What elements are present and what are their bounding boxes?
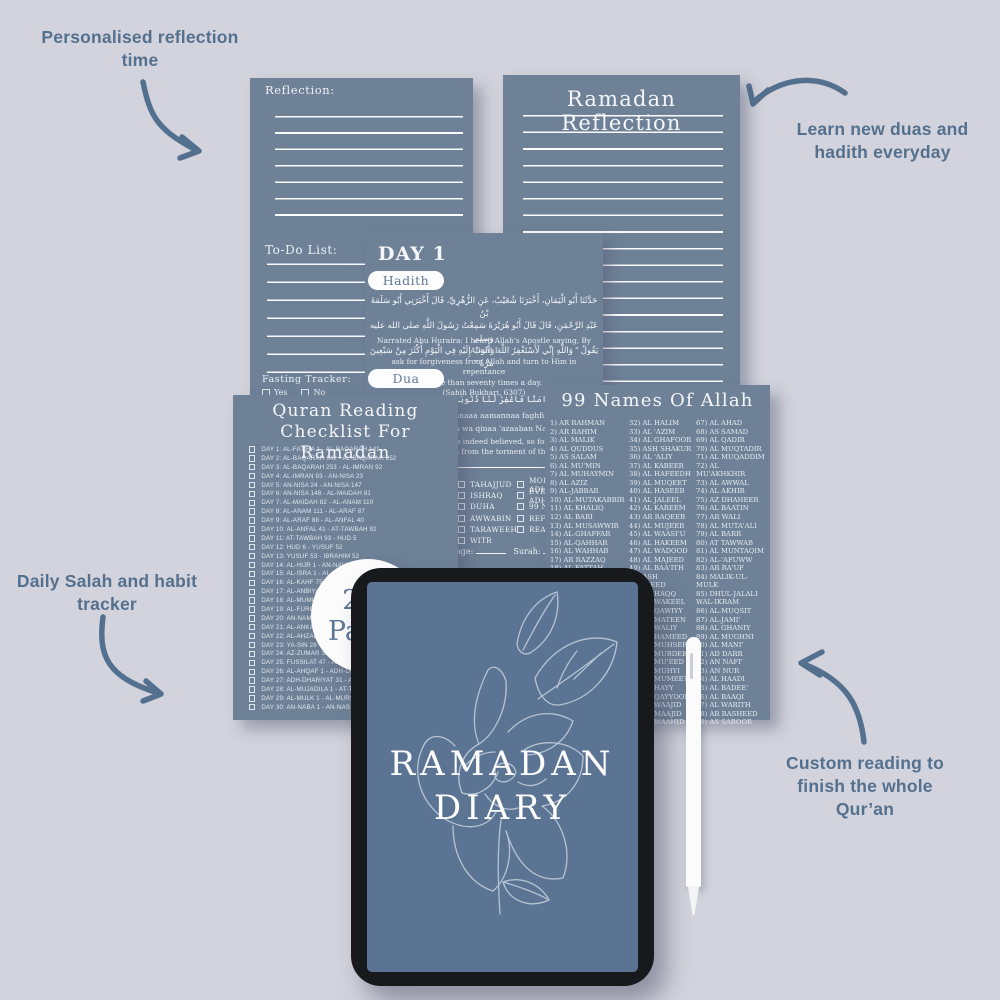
checkbox-icon [249,473,255,479]
checklist-item-text: DAY 5: AN-NISA 24 - AN-NISA 147 [261,482,361,489]
allah-name: 81) AL MUNTAQIM [696,547,768,556]
allah-name: 77) AR WALI [696,513,768,522]
allah-name: 1) AR RAHMAN [550,419,628,428]
checklist-item: DAY 13: YUSUF 53 - IBRAHIM 52 [249,552,454,561]
allah-name: 76) AL BAATIN [696,504,768,513]
checkbox-icon [249,455,255,461]
allah-name: 16) AL WAHHAB [550,547,628,556]
checklist-item: DAY 10: AL-ANFAL 41 - AT-TAWBAH 92 [249,525,454,534]
allah-name: 72) AL MU'AKHKHIR [696,462,768,479]
allah-name: 17) AR RAZZAQ [550,556,628,565]
checklist-item-text: DAY 3: AL-BAQARAH 253 - AL-IMRAN 92 [261,464,382,471]
checklist-item: DAY 4: AL-IMRAN 93 - AN-NISA 23 [249,472,454,481]
allah-name: 2) AR RAHIM [550,428,628,437]
arrow-down-left-icon [749,86,768,104]
allah-name: 68) AS SAMAD [696,428,768,437]
surah-label: Surah: [514,547,541,556]
allah-name: 91) AD DARR [696,650,768,659]
prayer-checklist-item: WITR [458,535,517,546]
allah-name: 7) AL MUHAYMIN [550,470,628,479]
allah-name: 69) AL QADIR [696,436,768,445]
allah-name: 67) AL AHAD [696,419,768,428]
allah-name: 98) AR RASHEED [696,710,768,719]
allah-name: 95) AL BADEE' [696,684,768,693]
checkbox-icon [249,633,255,639]
stylus-tip [686,886,701,915]
allah-name: 11) AL KHALIQ [550,504,628,513]
allah-name: 44) AL MUJEEB [629,522,695,531]
checkbox-icon [249,446,255,452]
tablet-mockup: RAMADAN DIARY [351,568,654,986]
checkbox-icon [249,535,255,541]
checkbox-icon [249,686,255,692]
allah-name: 96) AL BAAQI [696,693,768,702]
checkbox-icon [249,491,255,497]
day1-title: DAY 1 [378,243,447,265]
allah-name: 13) AL MUSAWWIR [550,522,628,531]
checklist-item: DAY 2: AL-BAQARAH 142 - AL-BAQARAH 252 [249,454,454,463]
prayer-checklist-item: TAHAJJUD [458,479,517,490]
names-column-3: 67) AL AHAD68) AS SAMAD69) AL QADIR70) A… [696,419,768,727]
allah-name: 15) AL-QAHHAR [550,539,628,548]
allah-name: 86) AL-MUQSIT [696,607,768,616]
allah-name: 35) ASH SHAKUR [629,445,695,454]
annotation-learn-duas: Learn new duas and hadith everyday [775,118,990,164]
allah-name: 32) AL HALIM [629,419,695,428]
diary-cover-title: RAMADAN DIARY [367,742,638,830]
annotation-personalised-reflection: Personalised reflection time [40,26,240,72]
allah-name: 37) AL KABEER [629,462,695,471]
hadith-arabic-line: حَدَّثَنَا أَبُو الْيَمَانِ، أَخْبَرَنَا… [369,294,599,319]
checkbox-icon [249,553,255,559]
allah-name: 45) AL WAASI'U [629,530,695,539]
checkbox-icon [458,526,465,533]
checklist-item-text: DAY 6: AN-NISA 148 - AL-MAIDAH 81 [261,490,371,497]
allah-name: 83) AR RA'UF [696,564,768,573]
allah-name: 41) AL JALEEL [629,496,695,505]
allah-name: 47) AL WADOOD [629,547,695,556]
checkbox-icon [249,677,255,683]
cover-title-line1: RAMADAN [367,742,638,786]
allah-name: 89) AL MUGHNI [696,633,768,642]
checkbox-icon [249,669,255,675]
checkbox-icon [249,660,255,666]
checkbox-icon [458,537,465,544]
checkbox-icon [517,515,524,522]
checkbox-icon [517,503,524,510]
allah-name: 93) AN NUR [696,667,768,676]
allah-name: 8) AL AZIZ [550,479,628,488]
allah-name: 40) AL HASEEB [629,487,695,496]
allah-name: 10) AL-MUTAKABBIR [550,496,628,505]
prayer-checklist-item: DUHA [458,501,517,512]
checkbox-icon [249,704,255,710]
hadith-button: Hadith [368,271,444,290]
allah-name: 14) AL-GHAFFAR [550,530,628,539]
checkbox-icon [249,482,255,488]
checkbox-icon [249,695,255,701]
allah-name: 85) DHUL-JALALI WAL-IKRAM [696,590,768,607]
allah-name: 78) AL MUTA'ALI [696,522,768,531]
arrow-down-right-icon [143,82,194,149]
checklist-item-text: DAY 9: AL-ARAF 88 - AL-ANFAL 40 [261,517,364,524]
allah-name: 5) AS SALAM [550,453,628,462]
checkbox-icon [249,624,255,630]
checklist-item-text: DAY 1: AL-FATIHA 1 - AL-BAQARAH 141 [261,446,379,453]
allah-name: 43) AR RAQEEB [629,513,695,522]
stylus-pen [686,637,701,887]
fasting-tracker-label: Fasting Tracker: [262,374,351,385]
allah-name: 94) AL HAADI [696,675,768,684]
checklist-item: DAY 1: AL-FATIHA 1 - AL-BAQARAH 141 [249,445,454,454]
checklist-item: DAY 9: AL-ARAF 88 - AL-ANFAL 40 [249,516,454,525]
allah-name: 82) AL-'AFUWW [696,556,768,565]
allah-name: 87) AL-JAMI' [696,616,768,625]
checklist-item: DAY 3: AL-BAQARAH 253 - AL-IMRAN 92 [249,463,454,472]
allah-name: 75) AZ DHAHEER [696,496,768,505]
prayer-checklist-item: AWWABIN [458,513,517,524]
checkbox-icon [249,464,255,470]
checklist-item: DAY 6: AN-NISA 148 - AL-MAIDAH 81 [249,489,454,498]
allah-name: 46) AL HAKEEM [629,539,695,548]
checkbox-icon [458,481,465,488]
reflection-label: Reflection: [265,83,335,97]
allah-name: 92) AN NAFI' [696,658,768,667]
prayer-name: ISHRAQ [470,491,503,500]
checklist-item: DAY 5: AN-NISA 24 - AN-NISA 147 [249,481,454,490]
checkbox-icon [458,515,465,522]
arrow-up-left-icon [804,664,864,742]
prayer-name: TARAWEEH [470,525,517,534]
allah-name: 90) AL MANI' [696,641,768,650]
allah-name: 36) AL 'ALIY [629,453,695,462]
annotation-custom-reading: Custom reading to finish the whole Qur’a… [770,752,960,821]
checkbox-icon [517,481,524,488]
allah-name: 97) AL WARITH [696,701,768,710]
quran-title-line1: Quran Reading [233,401,458,422]
checkbox-icon [249,562,255,568]
allah-name: 4) AL QUDDUS [550,445,628,454]
allah-name: 3) AL MALIK [550,436,628,445]
tablet-screen: RAMADAN DIARY [367,582,638,972]
arrow-down-left-icon [757,80,845,99]
allah-name: 48) AL MAJEED [629,556,695,565]
allah-name: 34) AL GHAFOOR [629,436,695,445]
checkbox-icon [249,589,255,595]
checklist-item-text: DAY 7: AL-MAIDAH 82 - AL-ANAM 110 [261,499,373,506]
checkbox-icon [249,544,255,550]
arrow-up-left-icon [801,652,822,675]
page-blank-line [476,546,506,554]
ramadan-diary-product-mockup: Personalised reflection time Learn new d… [0,0,1000,1000]
checkbox-icon [249,517,255,523]
checklist-item-text: DAY 12: HUD 6 - YUSUF 52 [261,544,342,551]
prayer-name: DUHA [470,502,495,511]
allah-name: 33) AL 'AZIM [629,428,695,437]
stylus-detail [690,653,693,679]
checkbox-icon [249,642,255,648]
checkbox-icon [249,615,255,621]
checklist-item-text: DAY 13: YUSUF 53 - IBRAHIM 52 [261,553,359,560]
arrow-down-right-icon [143,681,161,701]
arrow-down-right-icon [102,617,158,693]
allah-name: 42) AL KAREEM [629,504,695,513]
hadith-english-line: Narrated Abu Huraira: I heard Allah's Ap… [373,336,595,357]
checkbox-icon [249,526,255,532]
checklist-item: DAY 12: HUD 6 - YUSUF 52 [249,543,454,552]
dua-button: Dua [368,369,444,388]
checklist-item: DAY 7: AL-MAIDAH 82 - AL-ANAM 110 [249,498,454,507]
allah-name: 38) AL HAFEEDH [629,470,695,479]
allah-name: 79) AL BARR [696,530,768,539]
allah-name: 80) AT TAWWAB [696,539,768,548]
allah-name: 71) AL MUQADDIM [696,453,768,462]
allah-name: 99) AS SABOOR [696,718,768,727]
annotation-daily-salah: Daily Salah and habit tracker [12,570,202,616]
prayer-checklist-item: TARAWEEH [458,524,517,535]
checklist-item-text: DAY 8: AL-ANAM 111 - AL-ARAF 87 [261,508,365,515]
checkbox-icon [458,492,465,499]
checkbox-icon [458,503,465,510]
prayer-name: TAHAJJUD [470,480,512,489]
checkbox-icon [249,508,255,514]
allah-name: 39) AL MUQEET [629,479,695,488]
allah-name: 6) AL MU'MIN [550,462,628,471]
allah-name: 74) AL AKHIR [696,487,768,496]
allah-name: 73) AL AWWAL [696,479,768,488]
ruled-lines [275,101,463,216]
prayer-checklist-item: ISHRAQ [458,490,517,501]
allah-name: 84) MALIK-UL-MULK [696,573,768,590]
checkbox-icon [249,580,255,586]
checkbox-icon [249,500,255,506]
names-title: 99 Names Of Allah [545,390,770,411]
prayer-name: AWWABIN [470,514,512,523]
checkbox-icon [249,606,255,612]
checklist-item-text: DAY 11: AT-TAWBAH 93 - HUD 5 [261,535,356,542]
allah-name: 12) AL BARI [550,513,628,522]
allah-name: 70) AL MUQTADIR [696,445,768,454]
checklist-item-text: DAY 2: AL-BAQARAH 142 - AL-BAQARAH 252 [261,455,396,462]
checkbox-icon [249,597,255,603]
checkbox-icon [517,526,524,533]
checklist-item-text: DAY 10: AL-ANFAL 41 - AT-TAWBAH 92 [261,526,376,533]
checklist-item: DAY 8: AL-ANAM 111 - AL-ARAF 87 [249,507,454,516]
checkbox-icon [249,651,255,657]
checkbox-icon [249,571,255,577]
prayer-checklist: TAHAJJUD ISHRAQ DUHA AWWABIN [458,479,517,546]
prayer-name: WITR [470,536,492,545]
checkbox-icon [517,492,524,499]
checklist-item-text: DAY 30: AN-NABA 1 - AN-NAS 6 [261,704,355,711]
arrow-down-right-icon [180,137,199,158]
checklist-item: DAY 11: AT-TAWBAH 93 - HUD 5 [249,534,454,543]
checklist-item-text: DAY 4: AL-IMRAN 93 - AN-NISA 23 [261,473,363,480]
allah-name: 9) AL-JABBAR [550,487,628,496]
cover-title-line2: DIARY [367,786,638,830]
allah-name: 88) AL GHANIY [696,624,768,633]
